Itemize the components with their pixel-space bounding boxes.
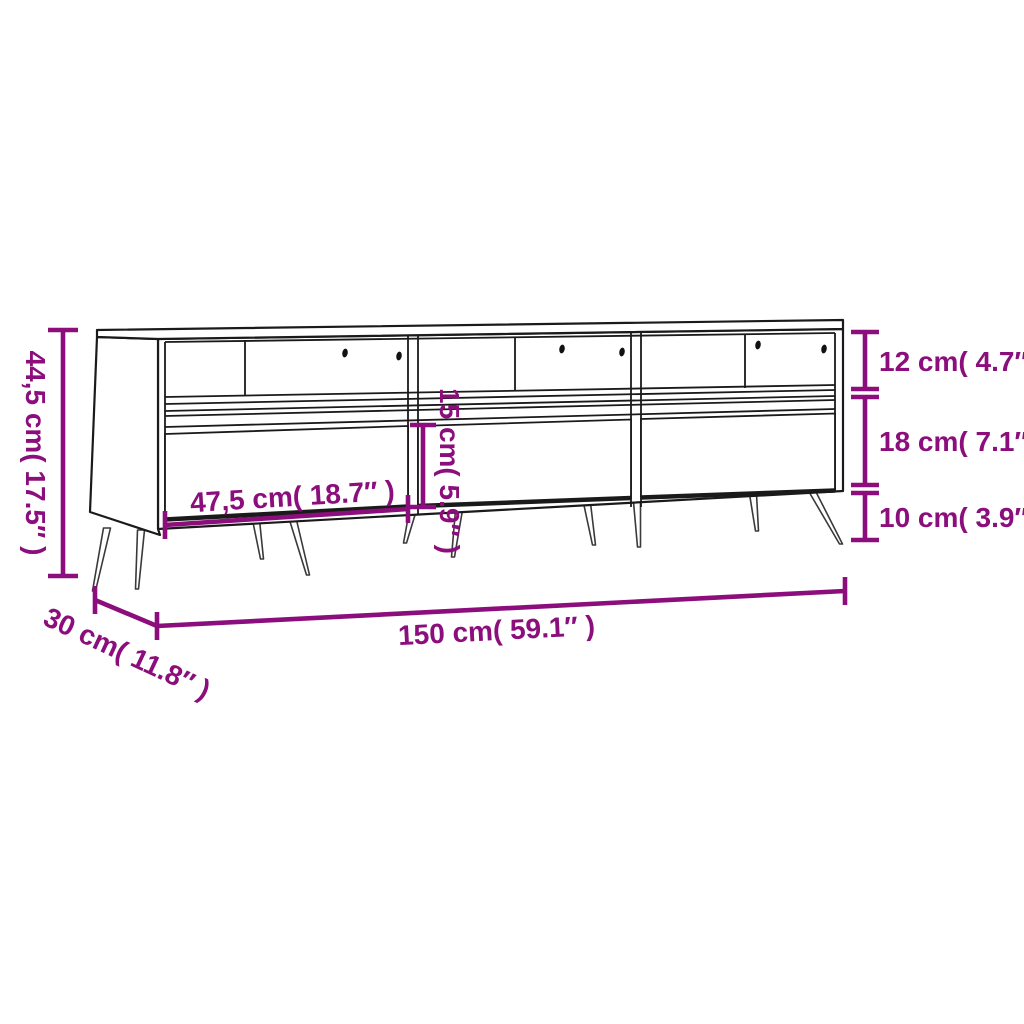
leg xyxy=(253,520,264,559)
leg-clearance-line xyxy=(851,493,879,540)
depth-label: 30 cm( 11.8″ ) xyxy=(39,601,215,705)
drawer-front xyxy=(641,414,835,498)
leg-clearance-label: 10 cm( 3.9″ ) xyxy=(879,502,1024,533)
tv-cabinet-drawing: 44,5 cm( 17.5″ ) 12 cm( 4.7″ ) 18 cm( 7.… xyxy=(0,0,1024,1024)
drawer-height-line xyxy=(851,397,879,485)
leg xyxy=(809,491,843,544)
leg xyxy=(750,494,759,531)
dimension-diagram: 44,5 cm( 17.5″ ) 12 cm( 4.7″ ) 18 cm( 7.… xyxy=(0,0,1024,1024)
compartment-height-line xyxy=(851,332,879,389)
depth-line xyxy=(95,586,157,626)
overall-height-label: 44,5 cm( 17.5″ ) xyxy=(20,351,51,556)
overall-height-line xyxy=(48,330,78,576)
compartment-height-label: 12 cm( 4.7″ ) xyxy=(879,346,1024,377)
leg xyxy=(136,530,145,589)
left-side-panel xyxy=(90,337,160,535)
overall-width-label: 150 cm( 59.1″ ) xyxy=(397,610,595,651)
leg xyxy=(634,502,641,547)
drawer-height-label: 18 cm( 7.1″ ) xyxy=(879,426,1024,457)
leg xyxy=(290,520,310,575)
inner-height-label: 15 cm( 5.9″ ) xyxy=(434,388,465,554)
leg xyxy=(93,528,111,591)
leg xyxy=(584,503,596,545)
